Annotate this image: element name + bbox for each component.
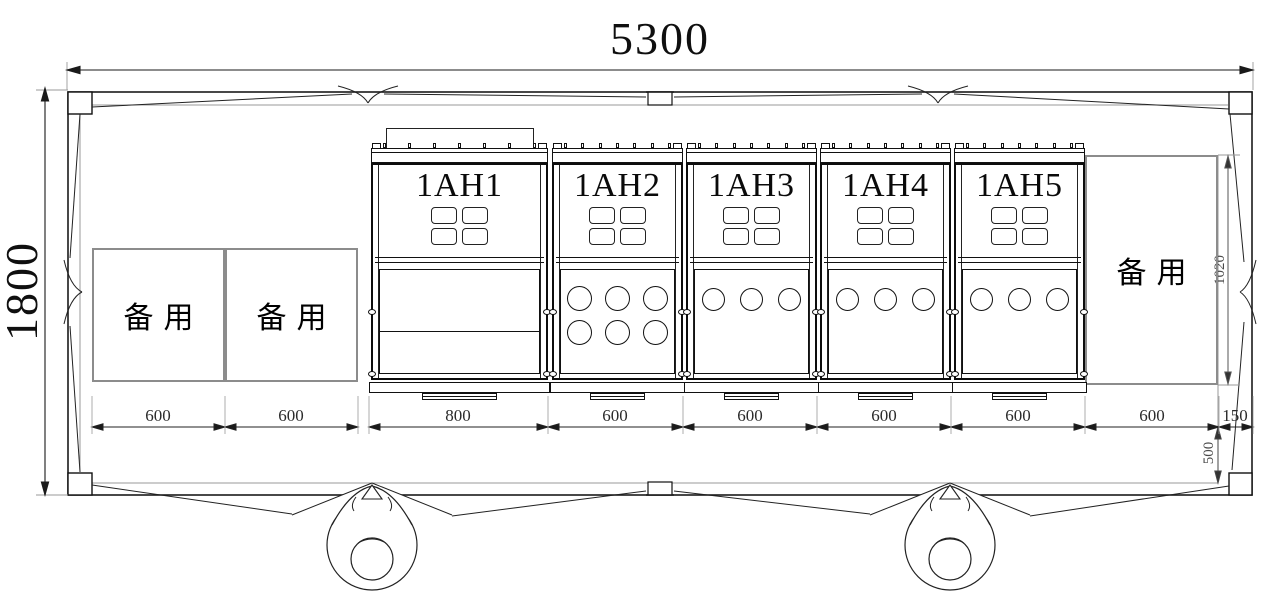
cabinet-top-rail (552, 148, 683, 163)
cabinet-front: 1AH3 (686, 163, 817, 380)
cabinet-top-rail (371, 148, 548, 163)
hinge-icon (683, 309, 691, 315)
dimension-bottom-label: 800 (423, 406, 493, 426)
cabinet-top-rail (820, 148, 951, 163)
cabinet-top-rail (686, 148, 817, 163)
panel-divider (958, 257, 1081, 263)
panel-divider (556, 257, 679, 263)
hinge-icon (951, 371, 959, 377)
cabinet-label: 1AH5 (956, 166, 1083, 206)
breaker-indicators (829, 288, 942, 311)
hinge-icon (951, 309, 959, 315)
dimension-overall-width-label: 5300 (540, 12, 780, 65)
panel-divider (690, 257, 813, 263)
cabinet-1ah2: 1AH2 (552, 143, 683, 401)
breaker-indicators (561, 286, 674, 311)
spare-position-box: 备用 (225, 248, 358, 382)
meter-grid (373, 207, 546, 245)
spare-label: 备用 (114, 293, 204, 337)
dimension-bottom-label: 600 (1117, 406, 1187, 426)
hinge-icon (683, 371, 691, 377)
cabinet-door (828, 269, 943, 374)
dimension-bottom-label: 600 (715, 406, 785, 426)
cabinet-label: 1AH1 (373, 166, 546, 206)
cabinet-foot (422, 393, 496, 400)
panel-divider (824, 257, 947, 263)
cabinet-label: 1AH4 (822, 166, 949, 206)
cabinet-plinth (952, 382, 1087, 393)
dimension-bottom-label: 600 (580, 406, 650, 426)
cabinet-door (962, 269, 1077, 374)
person-top-view-icon (292, 483, 452, 590)
cabinet-foot (858, 393, 913, 400)
breaker-indicators (695, 288, 808, 311)
cabinet-door (694, 269, 809, 374)
cabinet-front: 1AH5 (954, 163, 1085, 380)
cabinet-front: 1AH2 (552, 163, 683, 380)
cabinet-door (379, 269, 540, 374)
cabinet-foot (724, 393, 779, 400)
cabinet-front: 1AH4 (820, 163, 951, 380)
cabinet-label: 1AH2 (554, 166, 681, 206)
cabinet-plinth (818, 382, 953, 393)
cabinet-label: 1AH3 (688, 166, 815, 206)
dimension-bottom-label: 600 (256, 406, 326, 426)
cabinet-foot (590, 393, 645, 400)
hinge-icon (368, 309, 376, 315)
spare-position-box: 备用 (1085, 155, 1218, 385)
hinge-icon (1080, 371, 1088, 377)
dimension-rear-clearance-label: 500 (1201, 425, 1217, 481)
cabinet-1ah5: 1AH5 (954, 143, 1085, 401)
floor-plan: 5300 1800 600 600 800 600 600 600 600 60… (0, 0, 1280, 596)
dimension-bottom-label: 150 (1212, 406, 1258, 426)
cabinet-foot (992, 393, 1047, 400)
hinge-icon (817, 309, 825, 315)
meter-grid (956, 207, 1083, 245)
meter-grid (554, 207, 681, 245)
dimension-bottom-label: 600 (123, 406, 193, 426)
cabinet-plinth (684, 382, 819, 393)
hinge-icon (368, 371, 376, 377)
spare-label: 备用 (247, 293, 337, 337)
breaker-indicators (561, 320, 674, 345)
breaker-indicators (963, 288, 1076, 311)
cabinet-1ah4: 1AH4 (820, 143, 951, 401)
cabinet-1ah1: 1AH1 (371, 143, 548, 401)
cabinet-door (560, 269, 675, 374)
hinge-icon (549, 371, 557, 377)
spare-position-box: 备用 (92, 248, 225, 382)
person-top-view-icon (870, 483, 1030, 590)
panel-divider (375, 257, 544, 263)
cabinet-top-rail (954, 148, 1085, 163)
meter-grid (688, 207, 815, 245)
dimension-bottom-label: 600 (983, 406, 1053, 426)
cabinet-plinth (550, 382, 685, 393)
cabinet-plinth (369, 382, 550, 393)
cabinet-front: 1AH1 (371, 163, 548, 380)
hinge-icon (549, 309, 557, 315)
dimension-overall-height-label: 1800 (0, 211, 47, 371)
hinge-icon (817, 371, 825, 377)
dimension-bottom-label: 600 (849, 406, 919, 426)
spare-label: 备用 (1107, 248, 1197, 292)
cabinet-1ah3: 1AH3 (686, 143, 817, 401)
hinge-icon (1080, 309, 1088, 315)
meter-grid (822, 207, 949, 245)
